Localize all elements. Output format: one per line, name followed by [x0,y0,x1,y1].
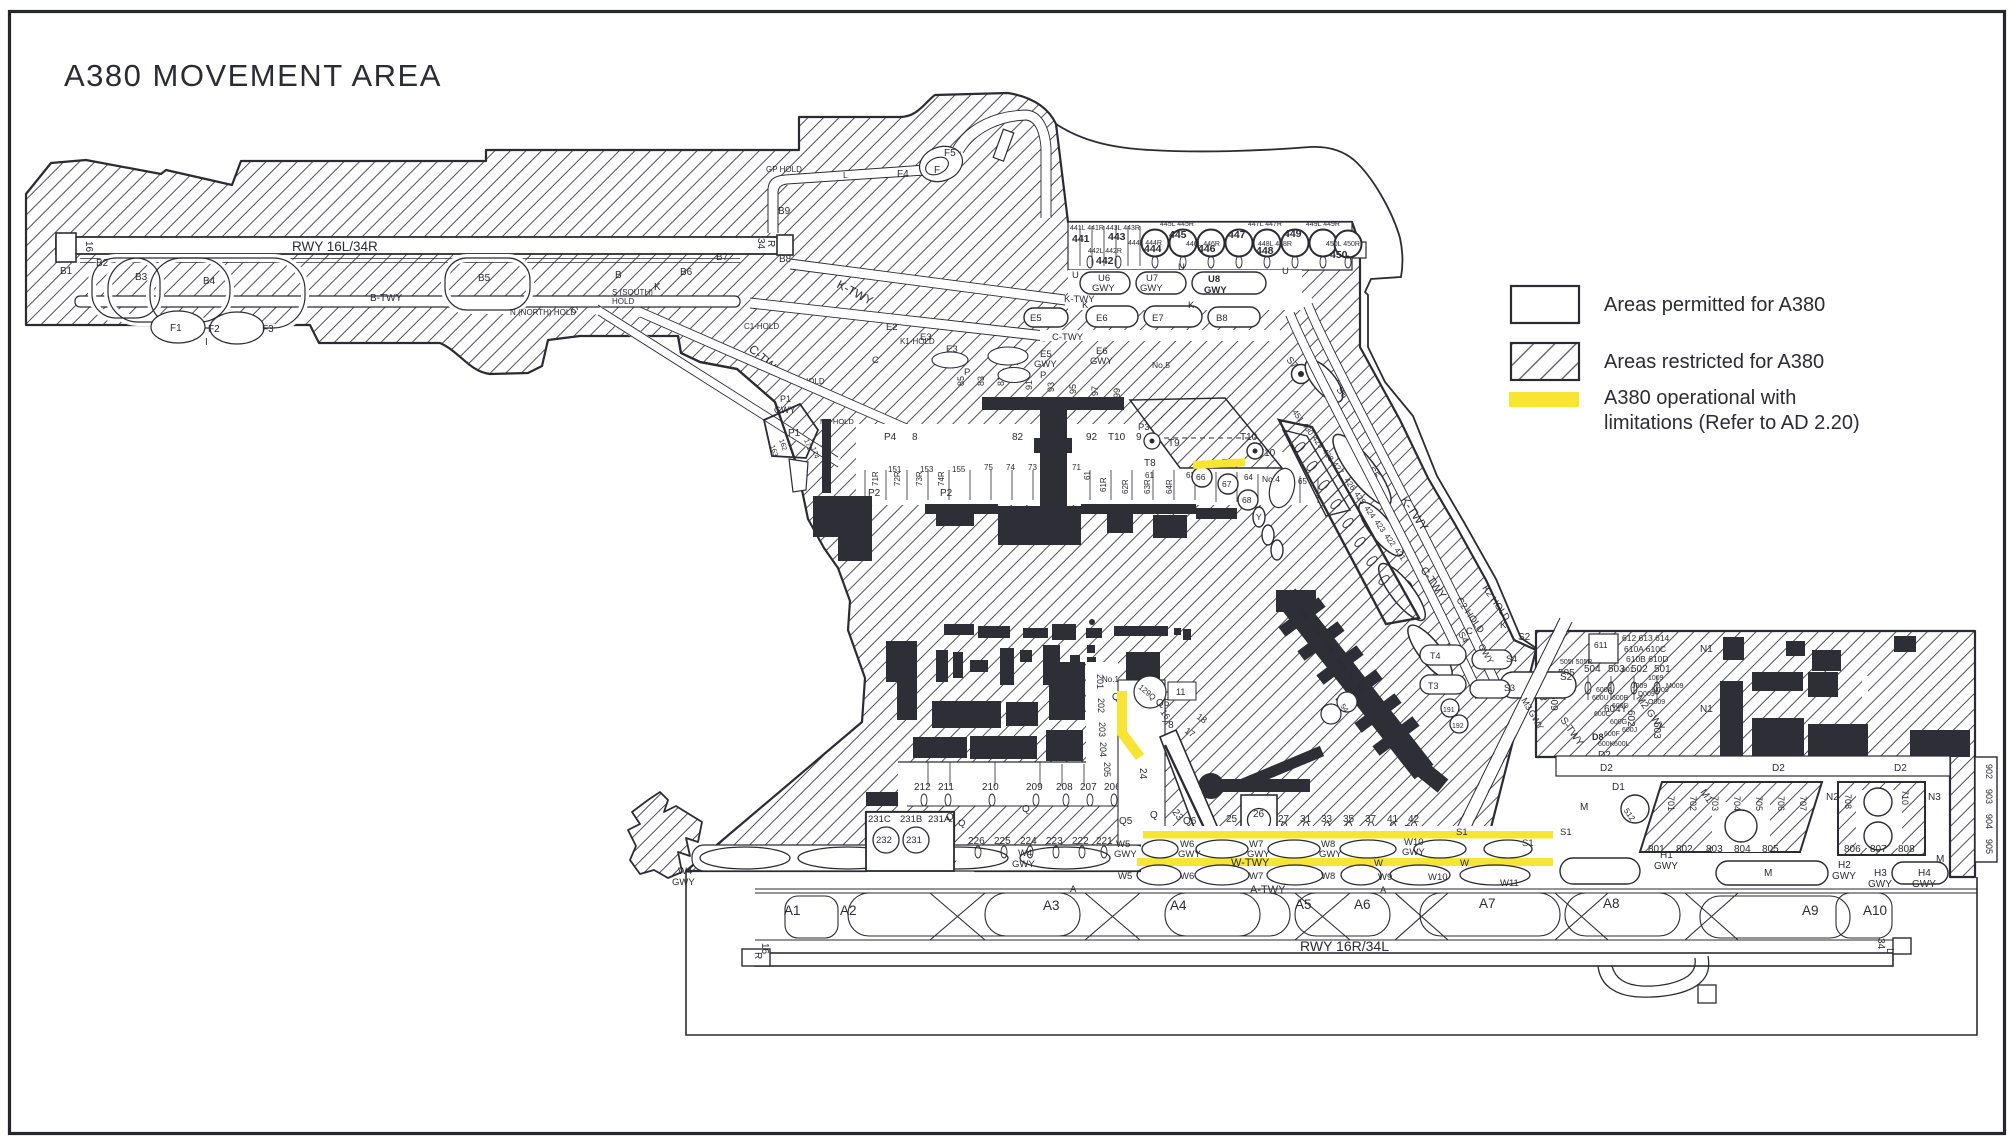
svg-text:N3: N3 [1928,792,1941,803]
svg-text:212: 212 [914,782,931,793]
svg-text:B8: B8 [779,254,792,265]
svg-text:600J: 600J [1622,727,1637,734]
svg-text:N1: N1 [1700,644,1713,655]
svg-text:GP HOLD: GP HOLD [766,165,802,174]
svg-text:S2: S2 [1518,632,1531,643]
svg-text:64: 64 [1244,473,1253,482]
svg-text:67: 67 [1222,479,1232,489]
svg-text:703: 703 [1710,796,1720,811]
svg-text:M: M [1580,802,1588,813]
svg-text:W8: W8 [1321,871,1335,882]
svg-text:R: R [752,952,763,959]
svg-text:600K: 600K [1598,741,1615,748]
svg-text:447L 447R: 447L 447R [1248,221,1282,228]
svg-text:W10: W10 [1428,872,1448,883]
svg-text:T8: T8 [1162,720,1174,731]
svg-text:A-TWY: A-TWY [1250,884,1286,896]
svg-text:B3: B3 [135,272,148,283]
svg-text:B: B [615,270,622,281]
svg-text:202: 202 [1096,698,1106,713]
svg-text:C-TWY: C-TWY [1052,332,1084,343]
svg-text:211: 211 [938,782,954,793]
svg-text:441L 441R 443L 443R: 441L 441R 443L 443R [1070,225,1140,232]
svg-text:T3: T3 [1428,681,1439,691]
svg-text:H2: H2 [1838,860,1851,871]
svg-text:706: 706 [1776,796,1786,811]
svg-text:T4: T4 [1430,651,1441,661]
svg-text:D1: D1 [1612,782,1625,793]
svg-text:W6: W6 [1180,871,1194,882]
svg-text:K: K [1188,300,1195,311]
svg-text:W11: W11 [1500,878,1519,889]
svg-text:702: 702 [1688,796,1698,811]
svg-text:61R: 61R [1099,477,1108,492]
svg-text:M009: M009 [1666,683,1684,690]
svg-text:231B: 231B [900,814,922,825]
svg-text:B7: B7 [716,252,729,263]
svg-text:P4: P4 [884,432,897,443]
svg-text:P: P [1040,370,1046,381]
svg-text:806: 806 [1844,844,1861,855]
svg-text:S2: S2 [1560,672,1573,683]
svg-text:600L: 600L [1614,741,1630,748]
svg-text:B4: B4 [203,276,216,287]
svg-text:T8: T8 [1144,458,1156,469]
svg-text:601: 601 [1622,667,1634,674]
svg-text:201: 201 [1095,674,1105,689]
svg-text:B8: B8 [1216,313,1228,324]
svg-text:600D: 600D [1612,703,1629,710]
svg-text:T10: T10 [1108,432,1126,443]
svg-text:153: 153 [920,465,934,474]
svg-text:W4: W4 [1018,848,1032,859]
svg-text:GWY: GWY [1090,356,1113,367]
svg-text:P1: P1 [780,394,791,404]
svg-text:S (SOUTH): S (SOUTH) [612,288,653,297]
svg-text:S1: S1 [1522,838,1534,849]
svg-text:E3: E3 [920,332,932,343]
svg-text:U8: U8 [1208,274,1220,285]
svg-text:902: 902 [1984,764,1994,779]
svg-text:611: 611 [1594,640,1608,650]
svg-text:26: 26 [1253,809,1265,820]
svg-text:F5: F5 [944,148,956,159]
svg-text:1009: 1009 [1648,675,1664,682]
svg-text:600A: 600A [1596,687,1613,694]
svg-text:61: 61 [1083,471,1092,480]
svg-text:225: 225 [994,836,1011,847]
svg-text:208: 208 [1056,782,1073,793]
svg-text:D8: D8 [1592,732,1604,742]
svg-text:C1-HOLD: C1-HOLD [744,322,779,331]
svg-text:71R: 71R [871,471,880,486]
svg-text:W: W [1460,858,1469,869]
svg-text:8: 8 [912,432,918,443]
svg-text:447: 447 [1228,229,1246,241]
svg-text:74R: 74R [937,471,946,486]
svg-text:93: 93 [1046,382,1056,392]
svg-text:C: C [872,355,879,366]
svg-text:W9: W9 [1378,872,1392,883]
svg-text:E2: E2 [886,322,898,333]
svg-text:600B: 600B [1612,695,1629,702]
svg-text:42: 42 [1408,814,1420,825]
svg-text:GWY: GWY [1034,359,1057,370]
svg-text:903: 903 [1984,789,1994,804]
svg-text:92: 92 [1086,432,1098,443]
svg-text:Q6: Q6 [1183,816,1197,827]
svg-text:16: 16 [83,241,94,253]
svg-text:T9: T9 [1168,438,1180,449]
svg-text:63R: 63R [1143,479,1152,494]
svg-text:D2: D2 [1600,763,1613,774]
svg-text:E7: E7 [1152,313,1164,324]
svg-text:232: 232 [876,835,892,846]
svg-text:I: I [205,337,208,348]
svg-text:GWY: GWY [774,405,796,415]
svg-text:K-TWY: K-TWY [1064,294,1095,305]
svg-text:612 613 614: 612 613 614 [1622,633,1670,643]
svg-text:97: 97 [1090,386,1100,396]
svg-text:207: 207 [1080,782,1097,793]
svg-text:B1: B1 [60,266,73,277]
svg-text:442: 442 [1096,255,1114,267]
svg-text:205: 205 [1102,762,1112,777]
svg-text:66: 66 [1196,472,1206,482]
svg-text:S1: S1 [1560,827,1572,838]
svg-text:B5: B5 [478,273,491,284]
svg-text:450L 450R: 450L 450R [1326,241,1360,248]
svg-text:U: U [1072,270,1079,281]
svg-text:807: 807 [1870,844,1887,855]
svg-text:B2: B2 [96,258,109,269]
svg-text:T10: T10 [1240,432,1258,443]
svg-text:P2: P2 [940,488,953,499]
svg-text:O009: O009 [1648,699,1665,706]
svg-text:443: 443 [1108,231,1126,243]
svg-text:905: 905 [1984,839,1994,854]
svg-text:S4: S4 [1506,654,1517,664]
svg-text:231: 231 [906,835,922,846]
svg-text:GWY: GWY [1868,879,1892,890]
svg-text:707: 707 [1798,796,1808,811]
svg-text:151: 151 [888,465,902,474]
svg-text:Y: Y [1256,512,1262,522]
svg-text:RWY 16R/34L: RWY 16R/34L [1300,938,1389,954]
svg-text:GWY: GWY [1832,871,1856,882]
svg-text:L: L [843,170,848,180]
svg-text:62R: 62R [1121,479,1130,494]
svg-text:W-TWY: W-TWY [1231,857,1270,869]
svg-text:224: 224 [1020,836,1037,847]
svg-text:K: K [654,282,661,293]
svg-text:441: 441 [1072,233,1090,245]
svg-text:E6: E6 [1096,313,1108,324]
svg-text:GWY: GWY [1912,879,1936,890]
svg-text:GWY: GWY [1319,849,1342,860]
svg-text:27: 27 [1278,814,1290,825]
svg-text:91: 91 [1024,380,1034,390]
svg-text:209: 209 [1026,782,1043,793]
svg-text:73: 73 [1028,463,1037,472]
svg-text:99: 99 [1112,388,1122,398]
svg-text:95: 95 [1068,384,1078,394]
svg-text:65: 65 [1298,477,1307,486]
svg-text:E5: E5 [1030,313,1042,324]
svg-text:H4: H4 [1918,868,1931,879]
svg-text:GWY: GWY [1114,849,1137,860]
svg-text:B6: B6 [680,267,693,278]
svg-text:A1: A1 [784,903,801,918]
svg-text:803: 803 [1706,844,1723,855]
svg-text:M: M [1936,854,1944,865]
svg-text:A380 operational with: A380 operational with [1604,387,1796,409]
svg-text:A380 MOVEMENT AREA: A380 MOVEMENT AREA [64,58,442,93]
svg-text:S1: S1 [1456,827,1468,838]
svg-text:R: R [765,240,776,247]
svg-text:442L 442R: 442L 442R [1088,248,1122,255]
svg-text:Q5: Q5 [1119,816,1133,827]
svg-text:704: 704 [1732,796,1742,811]
svg-text:F: F [934,165,940,176]
svg-text:K: K [1500,620,1507,631]
svg-text:A4: A4 [1170,898,1187,913]
svg-text:B-TWY: B-TWY [370,293,403,304]
svg-text:35: 35 [1343,814,1355,825]
svg-text:448L 448R: 448L 448R [1258,241,1292,248]
svg-text:F1: F1 [170,323,182,334]
svg-text:61: 61 [1145,471,1154,480]
svg-text:M: M [1764,868,1772,879]
svg-text:204: 204 [1098,742,1108,757]
svg-text:83: 83 [976,376,986,386]
svg-text:610B 610D: 610B 610D [1626,654,1669,664]
svg-text:H1: H1 [1660,850,1673,861]
svg-text:34: 34 [755,238,766,250]
svg-text:Q: Q [946,812,954,823]
svg-text:Q6: Q6 [1156,698,1170,709]
svg-text:805: 805 [1762,844,1779,855]
svg-text:231C: 231C [868,814,891,825]
svg-text:W: W [1374,858,1383,869]
svg-text:A5: A5 [1295,897,1312,912]
svg-text:GWY: GWY [672,877,695,888]
svg-text:GWY: GWY [1204,285,1227,296]
svg-text:802: 802 [1676,844,1693,855]
svg-text:F2: F2 [208,324,220,335]
svg-text:25: 25 [1226,814,1238,825]
svg-text:446L 446R: 446L 446R [1186,241,1220,248]
svg-text:A6: A6 [1354,897,1371,912]
svg-text:A10: A10 [1863,903,1887,918]
svg-text:GWY: GWY [1012,859,1035,870]
svg-text:610A 610C: 610A 610C [1624,644,1666,654]
svg-text:191: 191 [1443,707,1455,714]
svg-text:85: 85 [956,376,966,386]
svg-text:600F: 600F [1604,731,1620,738]
svg-text:708: 708 [1843,794,1853,809]
svg-text:192: 192 [1452,723,1464,730]
svg-text:444L 444R: 444L 444R [1128,240,1162,247]
svg-text:74: 74 [1006,463,1015,472]
svg-text:A9: A9 [1802,903,1819,918]
svg-text:S3: S3 [1504,683,1515,693]
svg-text:N1: N1 [1700,704,1713,715]
svg-text:600C: 600C [1594,711,1611,718]
svg-text:41: 41 [1387,814,1399,825]
svg-text:804: 804 [1734,844,1751,855]
svg-text:GWY: GWY [1178,849,1201,860]
svg-text:GWY: GWY [1140,283,1163,294]
svg-text:226: 226 [968,836,985,847]
svg-text:600G: 600G [1610,719,1627,726]
svg-text:904: 904 [1984,814,1994,829]
svg-text:808: 808 [1898,844,1915,855]
svg-text:71: 71 [1072,463,1081,472]
svg-text:11: 11 [1176,687,1185,697]
svg-text:445L 445R: 445L 445R [1160,221,1194,228]
svg-text:9: 9 [1136,432,1142,443]
svg-text:Areas permitted for A380: Areas permitted for A380 [1604,294,1825,316]
svg-text:GWY: GWY [1092,283,1115,294]
svg-text:A2: A2 [840,903,857,918]
svg-text:210: 210 [982,782,999,793]
svg-text:HOLD: HOLD [612,297,634,306]
svg-text:701: 701 [1666,796,1676,811]
svg-text:L: L [1884,948,1895,954]
svg-text:Areas restricted for A380: Areas restricted for A380 [1604,351,1824,373]
svg-text:P1: P1 [788,428,801,439]
svg-text:N (NORTH) HOLD: N (NORTH) HOLD [510,308,576,317]
svg-text:W4: W4 [678,866,692,877]
svg-text:31: 31 [1300,814,1312,825]
svg-text:600U: 600U [1592,695,1609,702]
svg-text:37: 37 [1365,814,1377,825]
svg-text:Q: Q [1022,804,1030,815]
svg-text:U: U [1282,266,1289,277]
svg-text:No.5: No.5 [1152,360,1170,370]
svg-text:Q: Q [958,818,965,829]
svg-text:24: 24 [1137,768,1148,780]
svg-text:F4: F4 [897,169,909,180]
svg-text:limitations (Refer to AD 2.20): limitations (Refer to AD 2.20) [1604,412,1860,434]
svg-text:75: 75 [984,463,993,472]
svg-text:710: 710 [1900,790,1910,805]
svg-text:68: 68 [1242,495,1252,505]
svg-text:D2: D2 [1772,763,1785,774]
svg-text:504: 504 [1584,664,1601,675]
svg-text:221: 221 [1096,836,1113,847]
svg-text:U: U [1178,262,1185,273]
svg-text:449: 449 [1284,228,1302,240]
svg-text:GWY: GWY [1654,861,1678,872]
svg-text:GWY: GWY [1402,847,1425,858]
svg-text:Q: Q [1150,810,1158,821]
svg-text:P3: P3 [1138,422,1150,433]
svg-text:33: 33 [1321,814,1333,825]
svg-text:A3: A3 [1043,898,1060,913]
svg-text:82: 82 [1012,432,1024,443]
svg-text:W5: W5 [1118,871,1132,882]
svg-text:A: A [1380,885,1387,896]
svg-text:No.4: No.4 [1262,474,1280,484]
svg-text:W7: W7 [1249,871,1263,882]
svg-text:222: 222 [1072,836,1089,847]
svg-text:155: 155 [952,465,966,474]
svg-text:501: 501 [1654,664,1671,675]
svg-text:445: 445 [1169,229,1187,241]
svg-text:203: 203 [1097,722,1107,737]
svg-text:B9: B9 [778,206,791,217]
svg-text:F3: F3 [262,324,274,335]
svg-text:M2-HOLD: M2-HOLD [820,417,854,426]
svg-text:H3: H3 [1874,868,1887,879]
svg-text:D2: D2 [1894,763,1907,774]
svg-text:RWY 16L/34R: RWY 16L/34R [292,239,378,254]
svg-text:223: 223 [1046,836,1063,847]
svg-text:705: 705 [1754,796,1764,811]
svg-text:64R: 64R [1165,479,1174,494]
svg-text:A8: A8 [1603,896,1620,911]
svg-text:A7: A7 [1479,896,1496,911]
svg-text:449L 449R: 449L 449R [1306,221,1340,228]
